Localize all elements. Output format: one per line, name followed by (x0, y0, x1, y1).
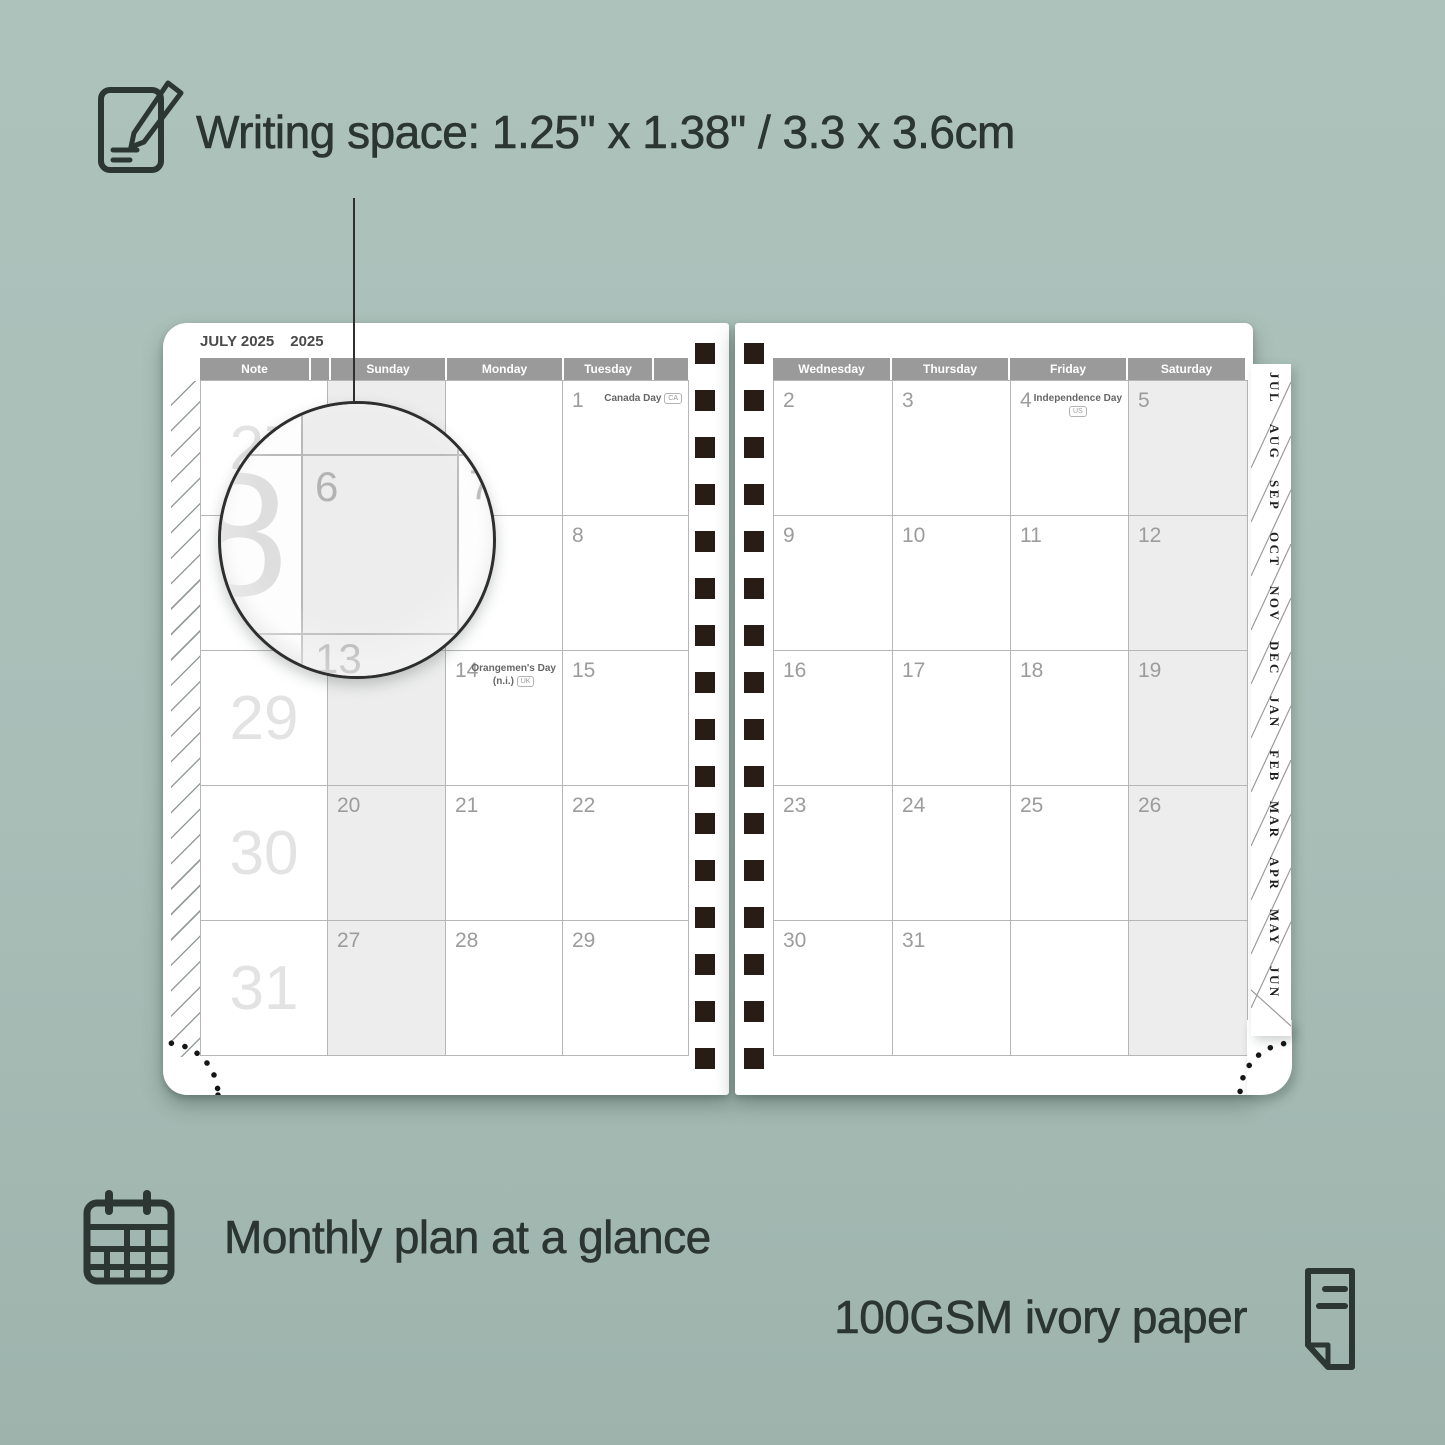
date-number: 26 (1138, 794, 1161, 818)
right-header-row: Wednesday Thursday Friday Saturday (773, 358, 1245, 380)
month-tab-aug: AUG (1261, 418, 1287, 466)
day-cell: 23 (774, 786, 893, 921)
day-cell: 29 (563, 921, 689, 1056)
year-label: 2025 (290, 333, 323, 350)
date-number: 15 (572, 659, 595, 683)
date-number: 16 (783, 659, 806, 683)
day-cell: 18 (1011, 651, 1129, 786)
date-number: 24 (902, 794, 925, 818)
date-number: 28 (455, 929, 478, 953)
day-cell: 12 (1129, 516, 1248, 651)
date-number: 2 (783, 389, 795, 413)
column-header-note: Note (200, 358, 309, 380)
week-number-cell: 31 (201, 921, 328, 1056)
date-number: 4 (1020, 389, 1032, 413)
date-number: 17 (902, 659, 925, 683)
day-cell: 30 (774, 921, 893, 1056)
day-cell: 14Orangemen's Day(n.i.) UK (446, 651, 563, 786)
day-cell: 1Canada Day CA (563, 381, 689, 516)
planner-right-page: Wednesday Thursday Friday Saturday 234In… (735, 323, 1253, 1095)
day-cell: 22 (563, 786, 689, 921)
date-number: 29 (572, 929, 595, 953)
column-header-saturday: Saturday (1128, 358, 1245, 380)
holiday-label: Canada Day CA (604, 392, 682, 405)
holiday-label: Orangemen's Day(n.i.) UK (471, 662, 556, 688)
day-cell: 28 (446, 921, 563, 1056)
date-number: 21 (455, 794, 478, 818)
right-calendar-grid: 234Independence DayUS5910111216171819232… (773, 380, 1248, 1056)
day-cell: 11 (1011, 516, 1129, 651)
column-header-wednesday: Wednesday (773, 358, 890, 380)
date-number: 11 (1020, 524, 1042, 548)
calendar-week-row: 30202122 (201, 786, 689, 921)
day-cell: 5 (1129, 381, 1248, 516)
column-header-sunday: Sunday (331, 358, 445, 380)
calendar-week-row: 16171819 (774, 651, 1248, 786)
date-number: 27 (337, 929, 360, 953)
day-cell: 4Independence DayUS (1011, 381, 1129, 516)
column-header-friday: Friday (1010, 358, 1126, 380)
magnifier-circle: 8 6 7 13 (218, 401, 496, 679)
date-number: 31 (902, 929, 925, 953)
day-cell: 19 (1129, 651, 1248, 786)
column-header-spacer (654, 358, 688, 380)
day-cell: 9 (774, 516, 893, 651)
day-cell: 15 (563, 651, 689, 786)
month-tab-strip: JULAUGSEPOCTNOVDECJANFEBMARAPRMAYJUN (1251, 364, 1291, 1036)
month-tab-nov: NOV (1261, 580, 1287, 628)
month-tab-may: MAY (1261, 904, 1287, 952)
month-tab-feb: FEB (1261, 742, 1287, 790)
column-header-monday: Monday (447, 358, 562, 380)
month-tab-jun: JUN (1261, 958, 1287, 1006)
day-cell: 31 (893, 921, 1011, 1056)
column-header-tuesday: Tuesday (564, 358, 652, 380)
margin-hatch-pattern (171, 381, 201, 1057)
day-cell: 24 (893, 786, 1011, 921)
calendar-week-row: 23242526 (774, 786, 1248, 921)
day-cell: 16 (774, 651, 893, 786)
day-cell: 25 (1011, 786, 1129, 921)
day-cell: 27 (328, 921, 446, 1056)
day-cell (1011, 921, 1129, 1056)
date-number: 1 (572, 389, 584, 413)
month-tab-oct: OCT (1261, 526, 1287, 574)
country-badge: UK (517, 676, 535, 687)
day-cell: 21 (446, 786, 563, 921)
month-title: JULY 20252025 (200, 333, 324, 350)
date-number: 12 (1138, 524, 1161, 548)
date-number: 5 (1138, 389, 1150, 413)
calendar-week-row: 3031 (774, 921, 1248, 1056)
magnifier-glass-sheen (221, 404, 493, 676)
month-title-label: JULY 2025 (200, 333, 274, 350)
day-cell (1129, 921, 1248, 1056)
month-tab-sep: SEP (1261, 472, 1287, 520)
holiday-label: Independence DayUS (1034, 392, 1122, 418)
writing-space-heading: Writing space: 1.25" x 1.38" / 3.3 x 3.6… (196, 105, 1015, 159)
day-cell: 10 (893, 516, 1011, 651)
note-pencil-icon (92, 78, 188, 176)
date-number: 9 (783, 524, 795, 548)
day-cell: 20 (328, 786, 446, 921)
date-number: 18 (1020, 659, 1043, 683)
country-badge: US (1069, 406, 1087, 417)
day-cell: 3 (893, 381, 1011, 516)
calendar-week-row: 9101112 (774, 516, 1248, 651)
month-tab-apr: APR (1261, 850, 1287, 898)
day-cell: 26 (1129, 786, 1248, 921)
date-number: 23 (783, 794, 806, 818)
date-number: 30 (783, 929, 806, 953)
week-number-cell: 30 (201, 786, 328, 921)
country-badge: CA (664, 393, 682, 404)
day-cell: 8 (563, 516, 689, 651)
date-number: 25 (1020, 794, 1043, 818)
dotted-corner-arc (166, 1039, 222, 1095)
month-tab-dec: DEC (1261, 634, 1287, 682)
column-header-thursday: Thursday (892, 358, 1008, 380)
day-cell: 2 (774, 381, 893, 516)
month-tab-jan: JAN (1261, 688, 1287, 736)
day-cell: 17 (893, 651, 1011, 786)
paper-icon (1300, 1268, 1360, 1370)
date-number: 10 (902, 524, 925, 548)
date-number: 19 (1138, 659, 1161, 683)
date-number: 20 (337, 794, 360, 818)
dotted-corner-arc (1236, 1039, 1292, 1095)
feature-paper: 100GSM ivory paper (834, 1290, 1247, 1344)
calendar-week-row: 31272829 (201, 921, 689, 1056)
column-header-spacer (311, 358, 329, 380)
product-infographic: Writing space: 1.25" x 1.38" / 3.3 x 3.6… (0, 0, 1445, 1445)
callout-connector-line (353, 198, 355, 404)
calendar-grid-icon (82, 1190, 176, 1286)
left-header-row: Note Sunday Monday Tuesday (200, 358, 688, 380)
spiral-binding-holes-left (695, 343, 715, 1073)
month-tab-jul: JUL (1261, 364, 1287, 412)
date-number: 3 (902, 389, 914, 413)
date-number: 22 (572, 794, 595, 818)
calendar-week-row: 234Independence DayUS5 (774, 381, 1248, 516)
date-number: 8 (572, 524, 584, 548)
spiral-binding-holes-right (744, 343, 764, 1073)
feature-monthly-plan: Monthly plan at a glance (224, 1210, 711, 1264)
month-tab-mar: MAR (1261, 796, 1287, 844)
